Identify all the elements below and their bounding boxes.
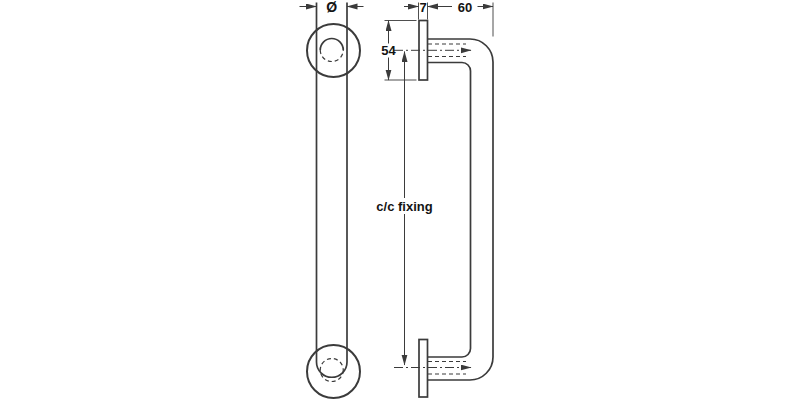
dimensions: Ø 7 60 54 c/c fixing <box>300 0 494 365</box>
dim-diameter-label: Ø <box>326 0 337 15</box>
bottom-rose-circle <box>307 345 360 398</box>
top-tube-hidden-arc <box>320 50 343 62</box>
dimension-cc-fixing: c/c fixing <box>376 52 432 366</box>
dimension-diameter: Ø <box>300 0 364 15</box>
drawing-canvas: Ø 7 60 54 c/c fixing <box>0 0 800 400</box>
pull-handle-technical-drawing: Ø 7 60 54 c/c fixing <box>0 0 800 400</box>
top-tube-end-arc <box>320 39 343 51</box>
top-rose-circle <box>307 24 360 77</box>
dim-cc-fixing-label: c/c fixing <box>376 199 432 214</box>
dimension-thickness-projection: 7 60 <box>404 0 493 37</box>
bottom-fixing-plate <box>419 340 428 398</box>
dim-height-label: 54 <box>381 43 396 58</box>
handle-inner-outline <box>428 63 471 358</box>
front-view <box>307 3 360 399</box>
dim-plate-thickness-label: 7 <box>419 0 426 15</box>
dim-projection-label: 60 <box>458 0 472 15</box>
handle-outer-outline <box>428 39 494 380</box>
